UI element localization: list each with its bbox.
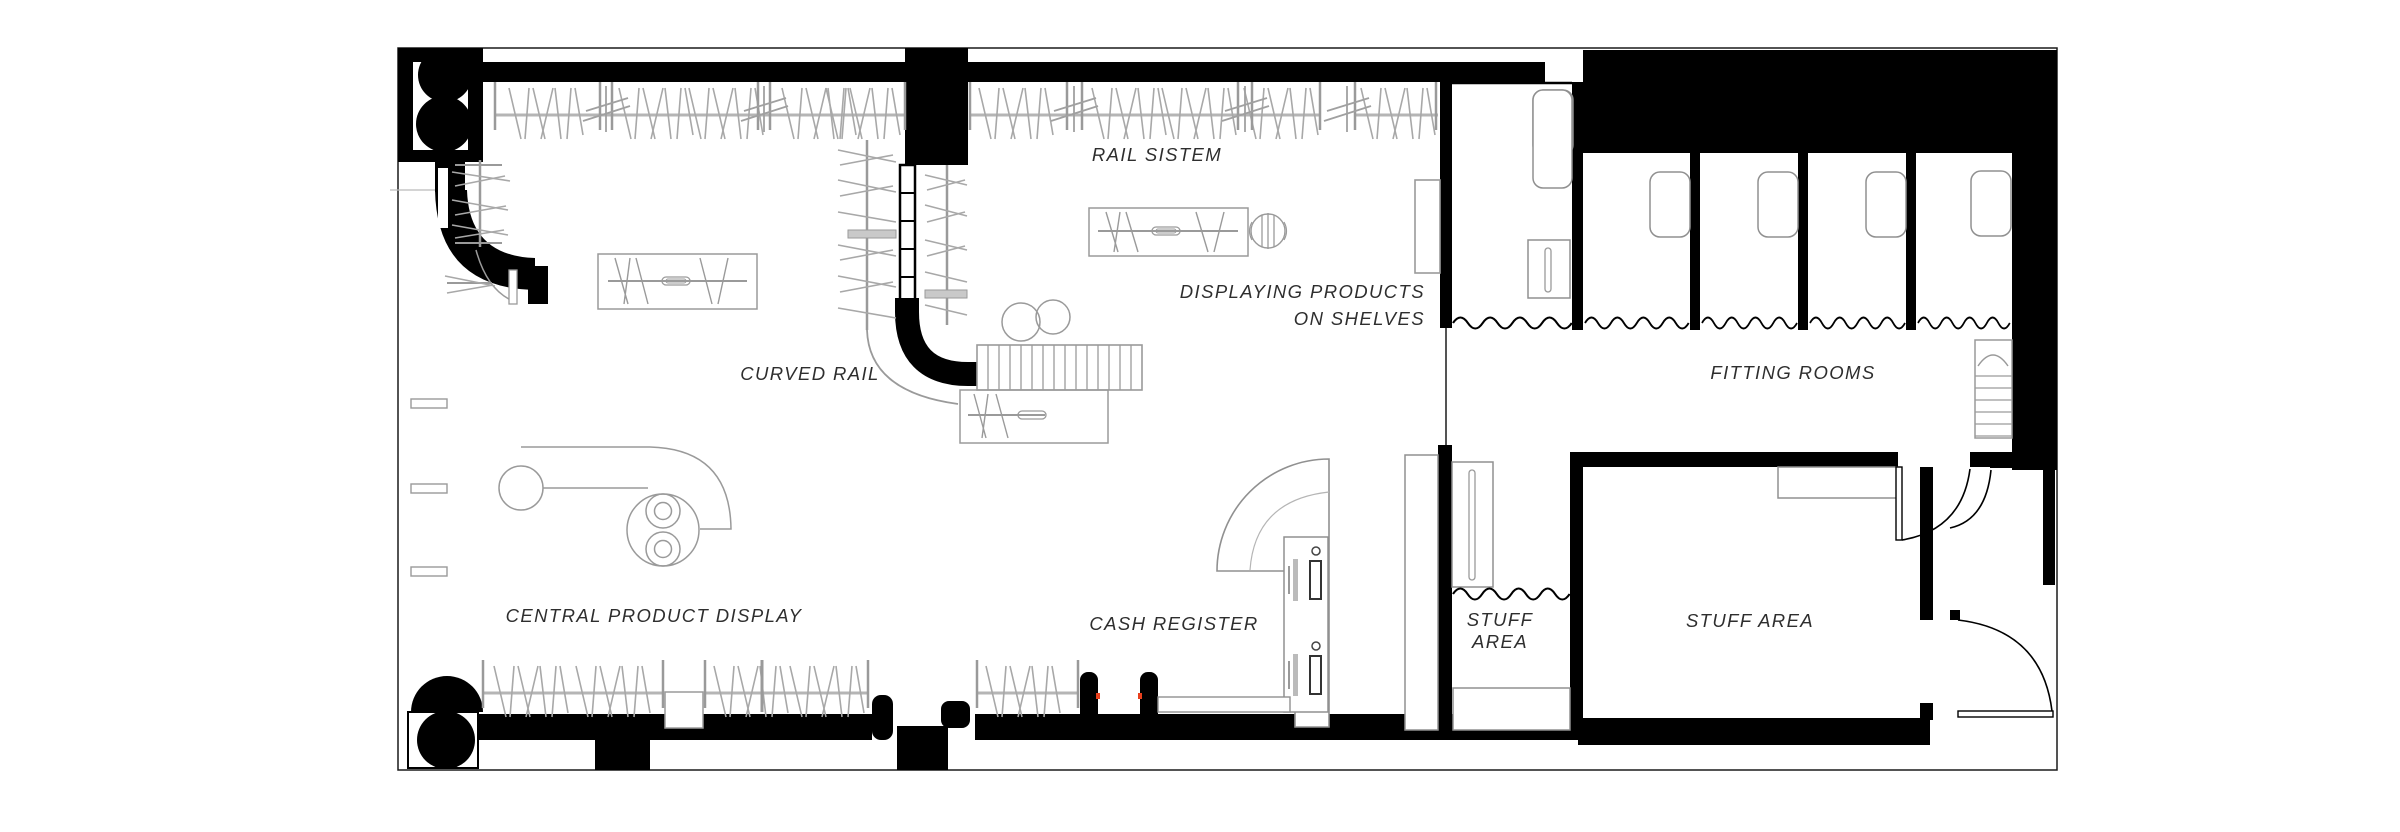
door-swing-arc — [1902, 469, 1970, 540]
product-shelf — [977, 345, 1142, 390]
label-displaying-products-line2: ON SHELVES — [1294, 308, 1425, 330]
label-stuff-area-large: STUFF AREA — [1686, 610, 1814, 632]
label-stuff-area-small-line2: AREA — [1472, 631, 1528, 653]
staff-area-large — [1778, 467, 1970, 540]
entrance-column-icon — [418, 48, 472, 102]
small-table — [665, 692, 703, 728]
staff-area-small — [1452, 462, 1570, 730]
floor-plan-drawing — [0, 0, 2400, 832]
door-swing-arc — [1950, 470, 1991, 528]
door-leaf — [1896, 467, 1902, 540]
label-cash-register: CASH REGISTER — [1089, 613, 1258, 635]
entrance-column-icon — [416, 96, 472, 152]
curtain — [1453, 318, 1572, 329]
door-swing-arc — [1958, 620, 2052, 711]
curtain — [1453, 589, 1570, 600]
display-table — [1089, 208, 1287, 256]
stairs — [1975, 340, 2012, 438]
central-product-display — [499, 447, 731, 566]
label-displaying-products-line1: DISPLAYING PRODUCTS — [1180, 281, 1425, 303]
label-central-product-display: CENTRAL PRODUCT DISPLAY — [506, 605, 803, 627]
shelf — [1778, 467, 1897, 498]
door-leaf — [1958, 711, 2053, 717]
stool — [1002, 303, 1040, 341]
label-curved-rail: CURVED RAIL — [740, 363, 879, 385]
label-fitting-rooms: FITTING ROOMS — [1710, 362, 1875, 384]
bottom-shelf — [1453, 688, 1570, 730]
tall-shelf — [1452, 462, 1493, 587]
display-table — [960, 390, 1108, 443]
stool — [1036, 300, 1070, 334]
cash-counter — [1158, 455, 1438, 730]
floor-plan: RAIL SISTEM DISPLAYING PRODUCTS ON SHELV… — [0, 0, 2400, 832]
label-rail-system: RAIL SISTEM — [1092, 144, 1222, 166]
building-outline — [398, 48, 2057, 770]
label-stuff-area-small-line1: STUFF — [1467, 609, 1534, 631]
counter-column — [1405, 455, 1438, 730]
display-table — [598, 254, 757, 309]
products-shelf — [1415, 180, 1440, 273]
wall-shelf — [411, 399, 447, 576]
partition-wall — [1438, 68, 1452, 732]
curved-rail-station — [838, 140, 1142, 404]
low-counter — [1158, 697, 1290, 712]
exit-corridor — [1950, 470, 2053, 717]
